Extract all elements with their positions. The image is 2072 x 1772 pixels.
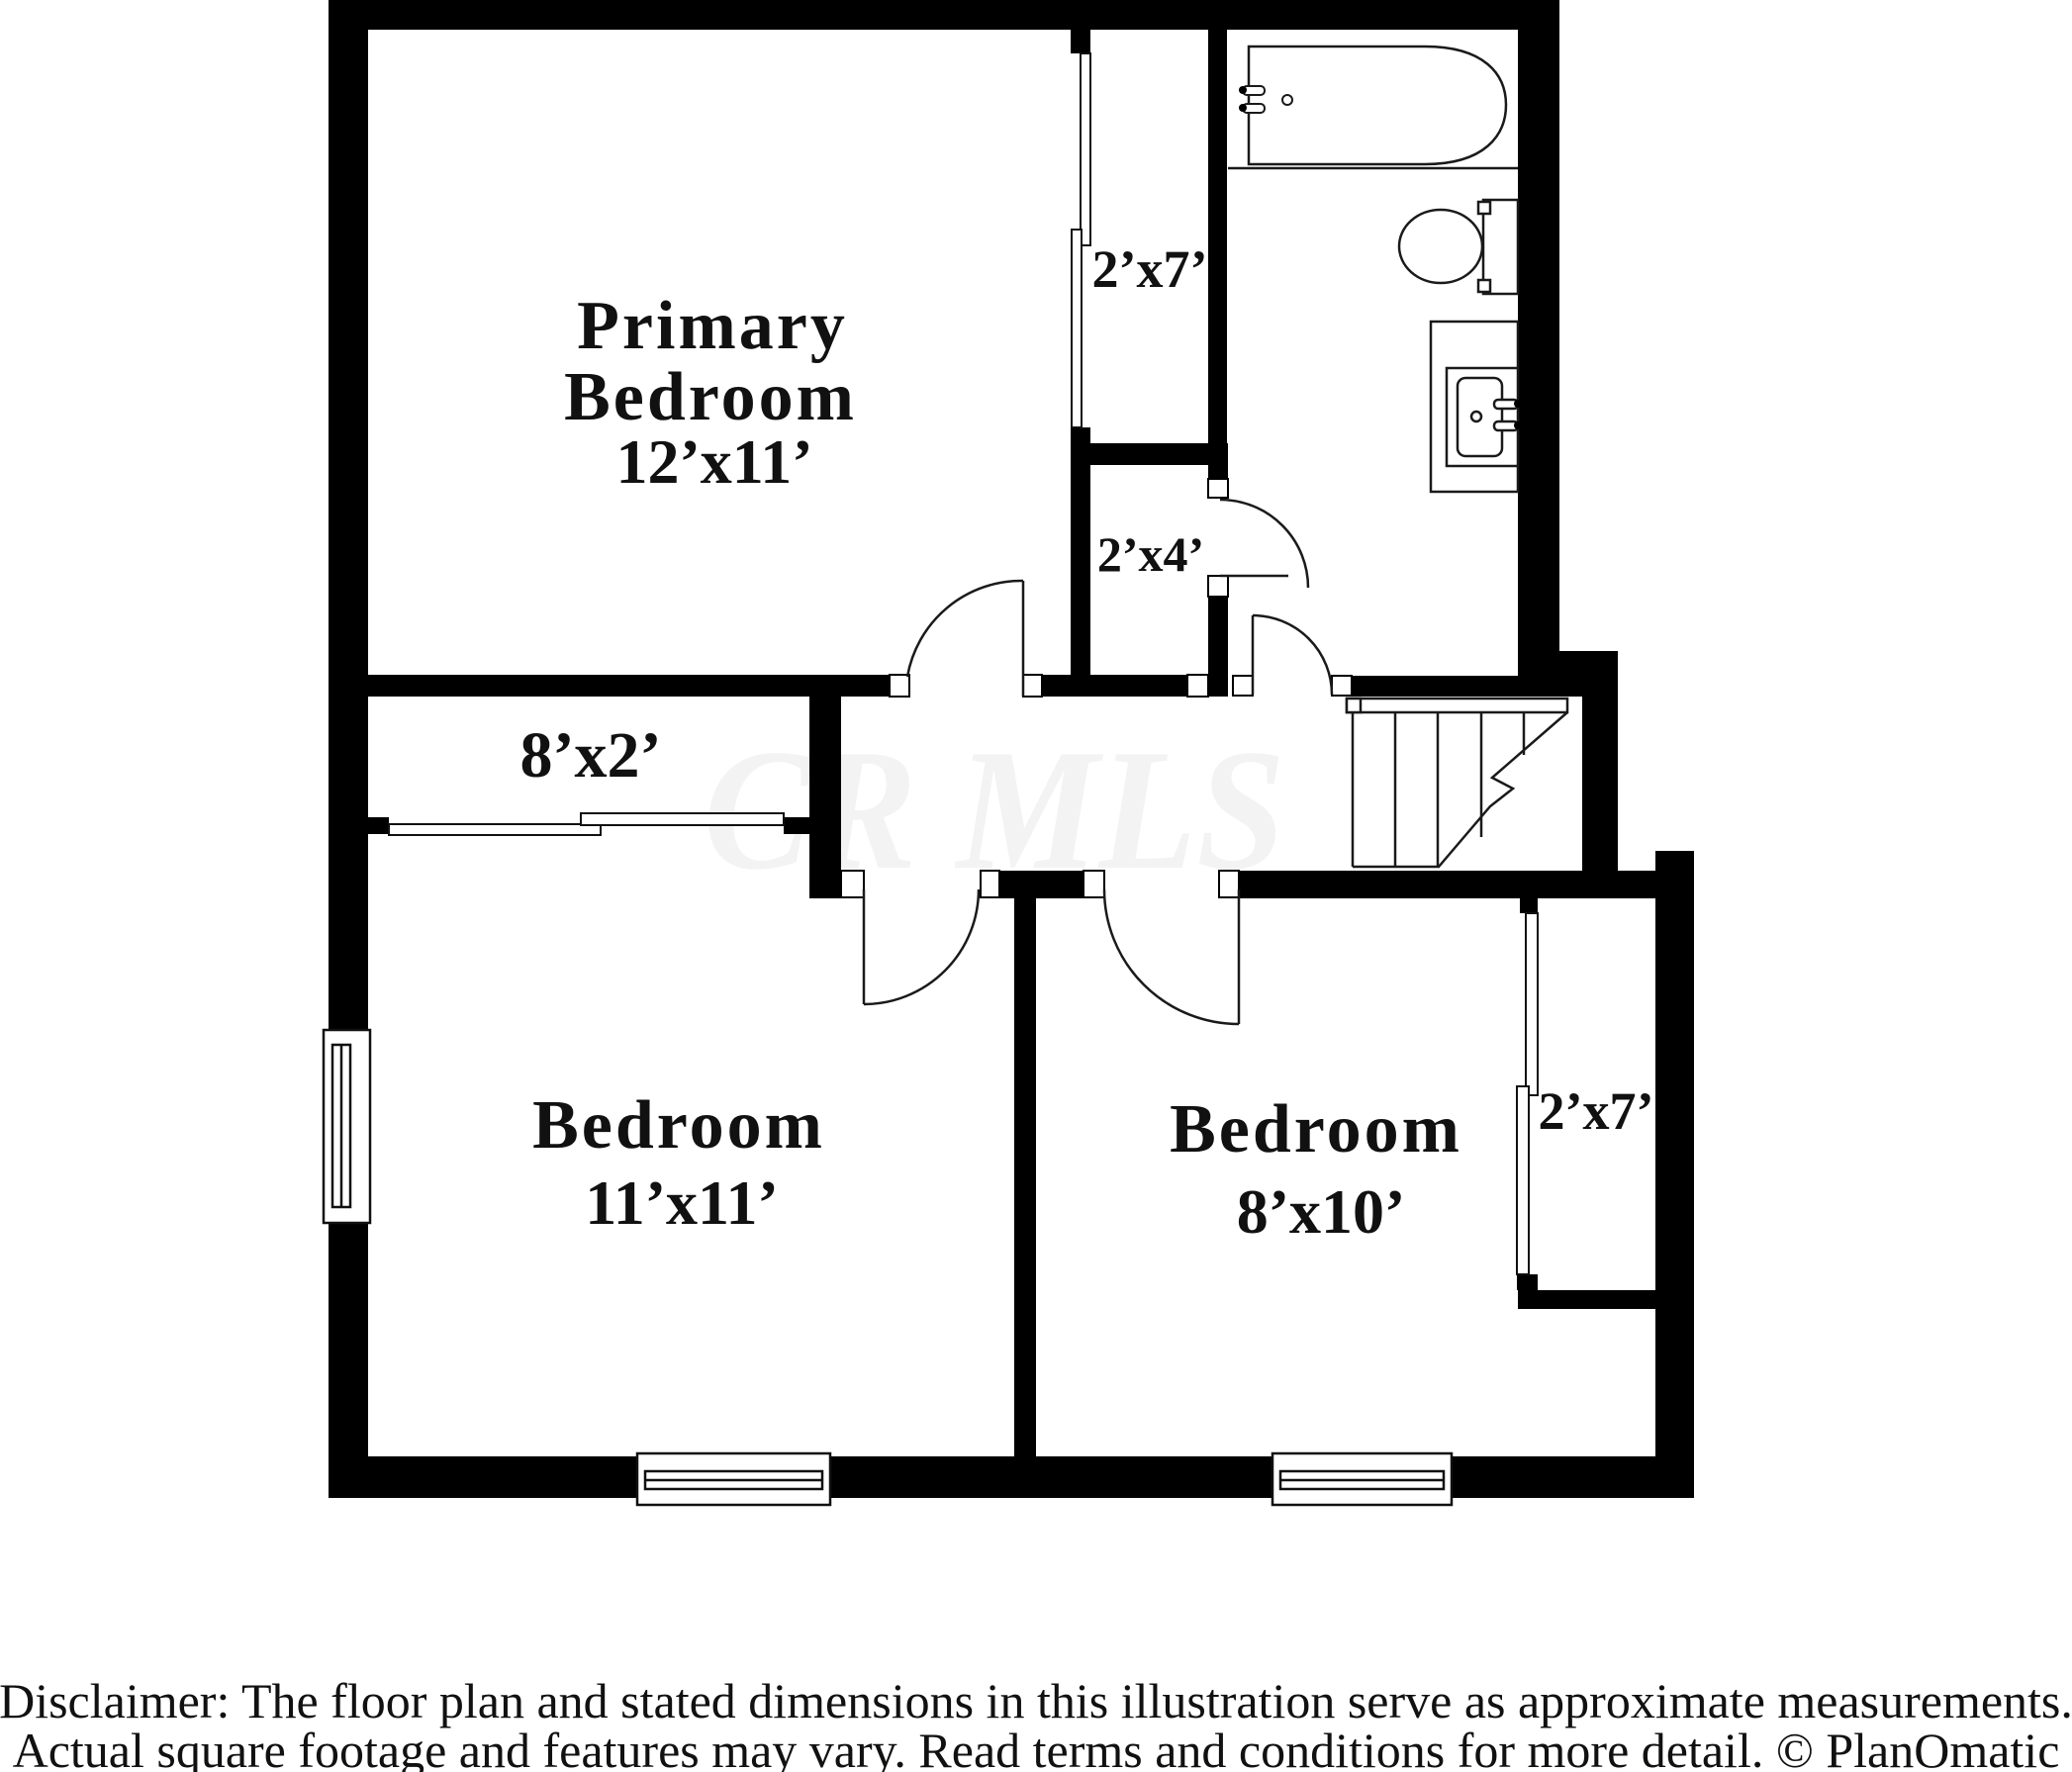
svg-text:8’x2’: 8’x2’ <box>520 719 662 792</box>
svg-text:2’x4’: 2’x4’ <box>1097 526 1204 582</box>
svg-text:Actual square footage and feat: Actual square footage and features may v… <box>13 1723 2060 1772</box>
svg-text:Bedroom: Bedroom <box>564 359 857 435</box>
svg-text:11’x11’: 11’x11’ <box>585 1167 779 1238</box>
svg-text:2’x7’: 2’x7’ <box>1539 1081 1654 1141</box>
svg-text:Bedroom: Bedroom <box>532 1087 825 1164</box>
svg-text:12’x11’: 12’x11’ <box>615 426 812 497</box>
svg-text:8’x10’: 8’x10’ <box>1237 1176 1406 1247</box>
svg-text:Bedroom: Bedroom <box>1170 1091 1462 1167</box>
svg-text:Disclaimer: The floor plan and: Disclaimer: The floor plan and stated di… <box>0 1673 2072 1728</box>
svg-text:2’x7’: 2’x7’ <box>1092 239 1208 299</box>
svg-text:Primary: Primary <box>577 288 848 364</box>
